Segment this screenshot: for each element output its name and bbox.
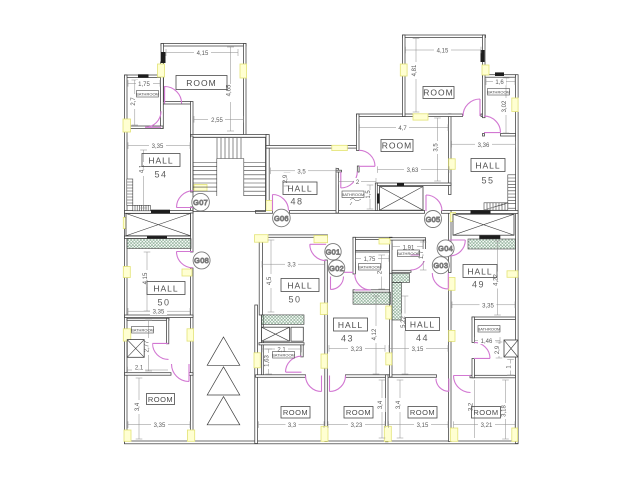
- svg-text:4,81: 4,81: [412, 64, 418, 76]
- svg-text:BATHROOM: BATHROOM: [358, 265, 381, 270]
- svg-text:HALL: HALL: [287, 184, 312, 194]
- svg-text:ROOM: ROOM: [186, 78, 216, 88]
- svg-text:50: 50: [157, 298, 170, 308]
- svg-text:3,4: 3,4: [396, 400, 402, 409]
- svg-text:1,6: 1,6: [495, 80, 504, 86]
- svg-text:G08: G08: [194, 256, 209, 265]
- svg-text:4,22: 4,22: [494, 274, 500, 286]
- svg-text:G03: G03: [433, 261, 448, 270]
- svg-text:BATHROOM: BATHROOM: [478, 327, 501, 332]
- svg-text:54: 54: [154, 170, 167, 180]
- svg-text:HALL: HALL: [475, 161, 500, 171]
- svg-text:3,15: 3,15: [417, 423, 429, 429]
- svg-text:48: 48: [290, 197, 303, 207]
- svg-text:HALL: HALL: [148, 156, 173, 166]
- svg-text:G07: G07: [193, 198, 208, 207]
- svg-text:3,18: 3,18: [502, 405, 508, 417]
- svg-text:ROOM: ROOM: [148, 395, 173, 404]
- svg-text:3,02: 3,02: [502, 100, 508, 112]
- svg-text:3,35: 3,35: [154, 423, 166, 429]
- svg-text:3,35: 3,35: [153, 310, 165, 316]
- svg-text:44: 44: [416, 333, 429, 343]
- svg-text:G04: G04: [438, 244, 453, 253]
- svg-text:BATHROOM: BATHROOM: [342, 192, 365, 197]
- svg-text:4,12: 4,12: [372, 328, 378, 340]
- svg-text:ROOM: ROOM: [283, 408, 308, 417]
- svg-text:2,77: 2,77: [145, 340, 151, 352]
- svg-text:BATHROOM: BATHROOM: [136, 92, 159, 97]
- svg-text:43: 43: [341, 334, 354, 344]
- svg-text:1,7: 1,7: [419, 250, 425, 259]
- svg-text:3,35: 3,35: [152, 144, 164, 150]
- svg-text:3,4: 3,4: [378, 400, 384, 409]
- svg-text:2,1: 2,1: [135, 366, 144, 372]
- svg-text:3,35: 3,35: [482, 303, 494, 309]
- svg-text:49: 49: [472, 280, 485, 290]
- svg-text:4,15: 4,15: [197, 51, 209, 57]
- svg-text:HALL: HALL: [467, 267, 492, 277]
- svg-text:HALL: HALL: [338, 320, 363, 330]
- svg-text:ROOM: ROOM: [382, 141, 412, 151]
- svg-text:4,1: 4,1: [140, 164, 146, 173]
- svg-text:ROOM: ROOM: [473, 408, 498, 417]
- svg-text:1,75: 1,75: [364, 257, 376, 263]
- svg-text:3,23: 3,23: [351, 423, 363, 429]
- svg-text:ROOM: ROOM: [410, 408, 435, 417]
- svg-text:ROOM: ROOM: [346, 408, 371, 417]
- svg-text:3,3: 3,3: [288, 423, 297, 429]
- svg-text:BATHROOM: BATHROOM: [487, 90, 510, 95]
- svg-text:ROOM: ROOM: [423, 88, 453, 98]
- svg-text:4,5: 4,5: [267, 276, 273, 285]
- svg-text:1,46: 1,46: [481, 339, 493, 345]
- svg-text:4,15: 4,15: [143, 272, 149, 284]
- svg-text:3,5: 3,5: [434, 143, 440, 152]
- svg-text:2,9: 2,9: [495, 345, 501, 354]
- svg-text:2,55: 2,55: [211, 118, 223, 124]
- svg-text:G01: G01: [326, 248, 341, 257]
- svg-text:4,15: 4,15: [437, 49, 449, 55]
- svg-text:1,5: 1,5: [366, 190, 372, 199]
- svg-text:G02: G02: [329, 264, 344, 273]
- svg-text:3,63: 3,63: [407, 168, 419, 174]
- svg-text:BATHROOM: BATHROOM: [397, 251, 420, 256]
- svg-text:3,15: 3,15: [412, 347, 424, 353]
- svg-text:50: 50: [288, 295, 301, 305]
- svg-text:HALL: HALL: [410, 320, 435, 330]
- svg-text:G05: G05: [426, 215, 441, 224]
- svg-text:G06: G06: [274, 214, 289, 223]
- svg-text:1,75: 1,75: [138, 82, 150, 88]
- svg-text:3,4: 3,4: [135, 402, 141, 411]
- svg-text:HALL: HALL: [287, 281, 312, 291]
- svg-text:3,36: 3,36: [478, 143, 490, 149]
- svg-text:2,7: 2,7: [131, 97, 137, 106]
- svg-text:BATHROOM: BATHROOM: [272, 353, 295, 358]
- svg-text:3,5: 3,5: [297, 169, 306, 175]
- svg-text:1,63: 1,63: [265, 355, 271, 367]
- svg-text:4,7: 4,7: [398, 126, 407, 132]
- svg-text:BATHROOM: BATHROOM: [131, 328, 154, 333]
- svg-text:3,23: 3,23: [351, 347, 363, 353]
- svg-text:HALL: HALL: [153, 284, 178, 294]
- svg-text:3,21: 3,21: [481, 423, 493, 429]
- svg-text:3,3: 3,3: [287, 263, 296, 269]
- svg-text:55: 55: [481, 176, 494, 186]
